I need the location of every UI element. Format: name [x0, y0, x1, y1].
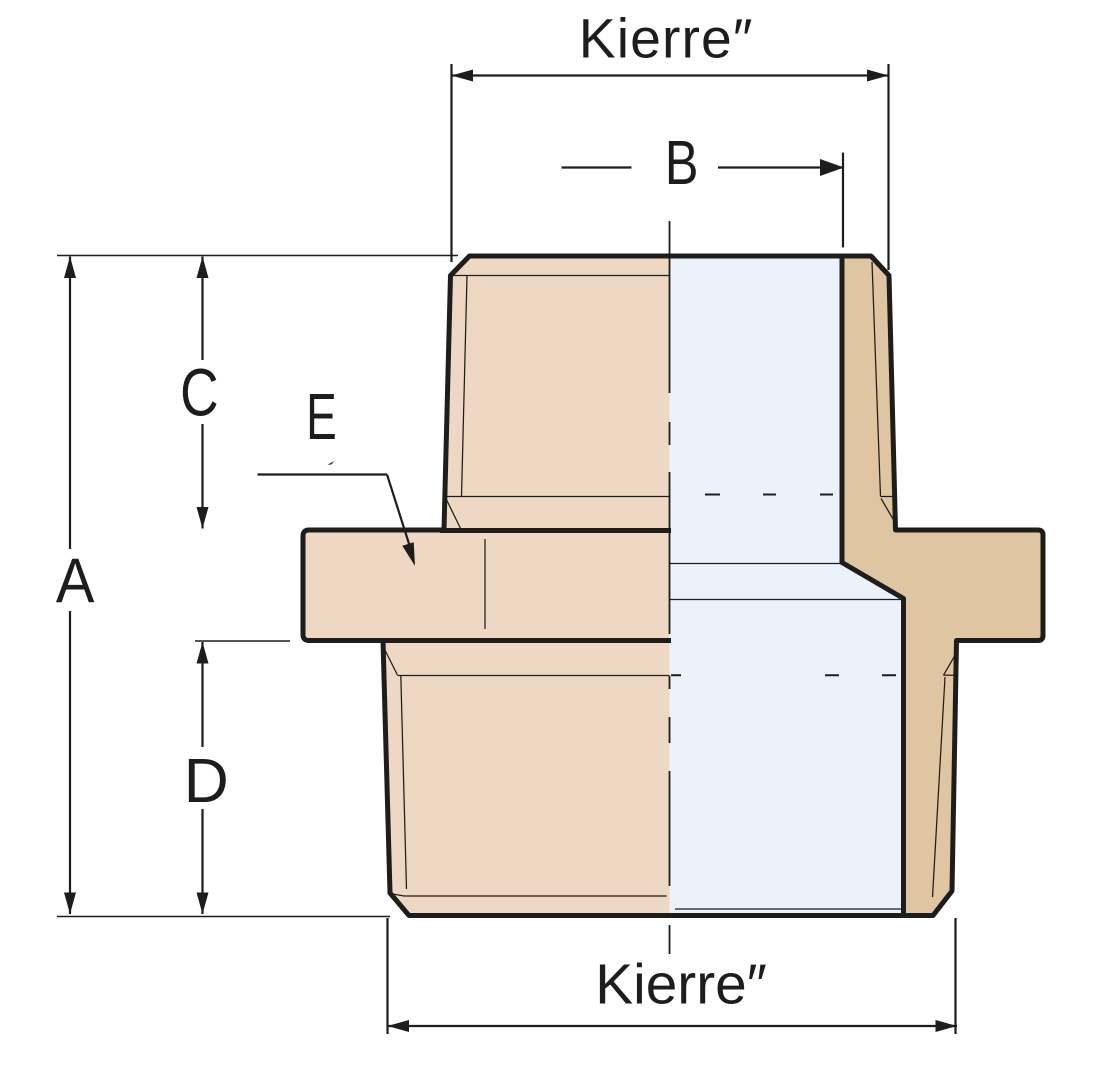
svg-text:Kierre″: Kierre″	[595, 953, 767, 1016]
svg-text:C: C	[180, 355, 218, 430]
svg-text:B: B	[665, 129, 699, 198]
svg-text:D: D	[184, 747, 229, 816]
svg-text:Kierre″: Kierre″	[579, 7, 754, 69]
svg-text:A: A	[56, 544, 95, 615]
svg-text:E: E	[306, 380, 337, 453]
